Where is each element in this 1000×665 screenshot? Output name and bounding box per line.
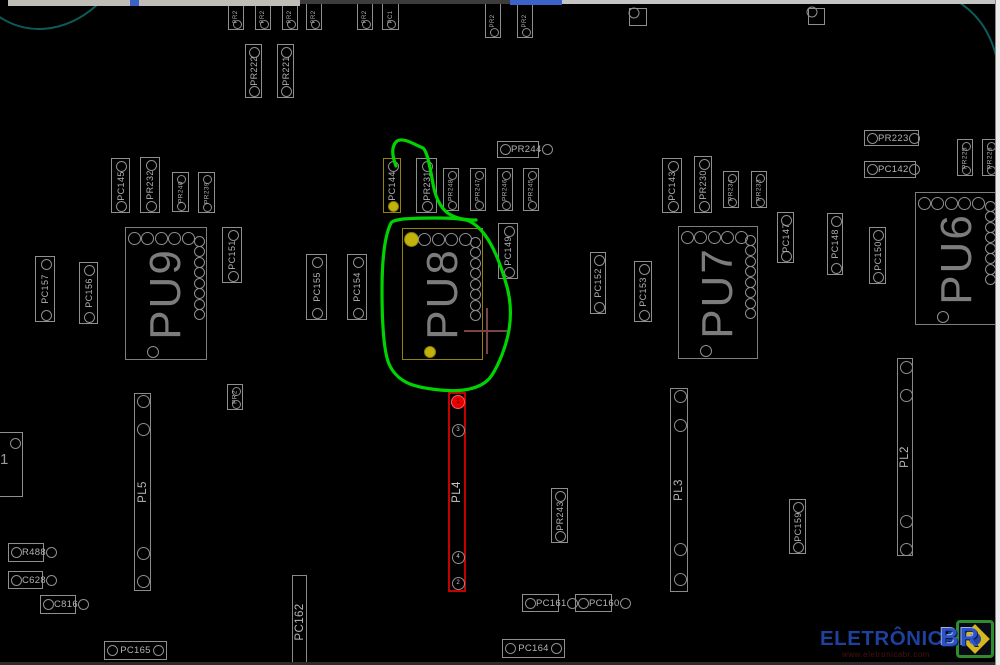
- chip-pad-icon: [745, 298, 756, 309]
- pin-number: 4: [456, 554, 459, 560]
- component-label: PC152: [593, 268, 603, 298]
- component-label: PR245: [528, 179, 535, 201]
- component-label: PL3: [673, 479, 685, 501]
- chip-pad-icon: [681, 231, 694, 244]
- pin1-marker: [388, 201, 399, 212]
- component-label: PC142: [878, 164, 909, 175]
- component-PR246[interactable]: PR246: [497, 168, 513, 211]
- component-pad-icon: [909, 164, 920, 175]
- connector-pad-icon: 2: [452, 577, 465, 590]
- chip-pad-icon: [745, 287, 756, 298]
- chip-pad-icon: [985, 243, 996, 254]
- component-pad-icon: [551, 643, 562, 654]
- component-PC151[interactable]: PC151: [222, 227, 242, 283]
- component-PR245[interactable]: PR245: [523, 168, 539, 211]
- component-pad-icon: [177, 202, 186, 211]
- component-label: PC1: [388, 10, 394, 23]
- component-pad-icon: [528, 201, 537, 210]
- chip-PU9[interactable]: PU9: [125, 227, 207, 360]
- component-PR2[interactable]: PR2: [227, 384, 243, 410]
- component-pad-icon: [46, 547, 57, 558]
- chip-pad-icon: [141, 232, 154, 245]
- connector-pad-icon: [137, 547, 150, 560]
- component-label: PR222: [249, 56, 259, 86]
- component-pad-icon: [873, 272, 884, 283]
- chip-PU7[interactable]: PU7: [678, 226, 758, 359]
- connector-pad-icon: [137, 423, 150, 436]
- chip-pad-icon: [194, 278, 205, 289]
- component-PC144[interactable]: PC144: [383, 158, 401, 213]
- component-pad-icon: [448, 201, 457, 210]
- component-PR239[interactable]: PR239: [198, 172, 215, 213]
- component-pad-icon: [41, 259, 52, 270]
- component-pad-icon: [153, 645, 164, 656]
- component-pad-icon: [10, 438, 21, 449]
- component-PR221[interactable]: PR221: [277, 44, 294, 98]
- component-pad-icon: [500, 144, 511, 155]
- component-label: PR2: [522, 14, 528, 27]
- chip-pad-icon: [918, 197, 931, 210]
- component-PC147[interactable]: PC147: [777, 212, 794, 263]
- component-PC142[interactable]: PC142: [864, 161, 916, 178]
- chip-pad-icon: [445, 233, 458, 246]
- component-label: PR234: [728, 179, 735, 201]
- component-label: PC148: [830, 229, 840, 259]
- component-PR2[interactable]: PR2: [255, 3, 271, 30]
- component-PR240[interactable]: PR240: [172, 172, 189, 212]
- component-label: PR247: [475, 179, 482, 201]
- component-label: PL5: [137, 481, 149, 503]
- chip-pad-icon: [985, 232, 996, 243]
- connector-PC162[interactable]: PC162: [292, 575, 307, 665]
- chip-pad-icon: [194, 257, 205, 268]
- component-label: PC164: [518, 643, 549, 654]
- chip-pad-icon: [194, 288, 205, 299]
- component-label: PL4: [451, 481, 463, 503]
- connector-pad-icon: [674, 390, 687, 403]
- chip-label: PU9: [141, 248, 191, 340]
- chip-pad-icon: [694, 231, 707, 244]
- connector-pad-icon: [137, 575, 150, 588]
- component-pad-icon: [312, 308, 323, 319]
- component-pad-icon: [11, 575, 22, 586]
- chip-pad-icon: [194, 309, 205, 320]
- connector-PL4[interactable]: PL41342: [448, 392, 466, 592]
- component-layer: PU9PU8PU7PU6PL5PL41342PL3PL2PC162PR2PR2P…: [0, 0, 1000, 665]
- component-label: PR2: [232, 390, 239, 404]
- component-pad-icon: [578, 598, 589, 609]
- component-pad-icon: [490, 28, 499, 37]
- component-pad-icon: [353, 308, 364, 319]
- component-label: PC165: [120, 645, 151, 656]
- component-label: PR2: [260, 10, 266, 23]
- component-label: 1: [0, 451, 8, 468]
- chip-pad-icon: [128, 232, 141, 245]
- component-pad-icon: [525, 598, 536, 609]
- connector-pad-icon: [900, 389, 913, 402]
- chip-pad-icon: [194, 267, 205, 278]
- component-PC150[interactable]: PC150: [869, 227, 886, 284]
- chip-pad-icon: [931, 197, 944, 210]
- component-PC153[interactable]: PC153: [634, 261, 652, 322]
- component-square[interactable]: [808, 8, 825, 25]
- chip-label: PU6: [932, 213, 982, 305]
- chip-pad-icon: [985, 253, 996, 264]
- chip-pad-icon: [470, 237, 481, 248]
- window-top-strip-dark: [300, 0, 510, 4]
- component-label: C816: [54, 599, 78, 610]
- connector-pad-icon: [674, 573, 687, 586]
- component-label: PC156: [84, 278, 94, 308]
- connector-pad-icon: 4: [452, 551, 465, 564]
- component-pad-icon: [555, 531, 566, 542]
- component-pad-icon: [84, 265, 95, 276]
- component-pad-icon: [542, 144, 553, 155]
- component-label: PC162: [294, 603, 306, 640]
- component-label: PR226: [987, 147, 994, 169]
- connector-pad-icon: 3: [452, 424, 465, 437]
- component-label: PC145: [116, 171, 126, 201]
- pin-number: 1: [456, 399, 459, 405]
- component-PR247[interactable]: PR247: [470, 168, 486, 211]
- component-pad-icon: [594, 255, 605, 266]
- connector-pad-icon: [900, 543, 913, 556]
- chip-bottom-pad-icon: [424, 346, 436, 358]
- component-PC161[interactable]: PC161: [522, 594, 559, 612]
- component-PC154[interactable]: PC154: [347, 254, 367, 320]
- connector-pad-icon: [674, 419, 687, 432]
- component-label: PC154: [352, 272, 362, 302]
- chip-pad-icon: [745, 256, 756, 267]
- component-pad-icon: [107, 645, 118, 656]
- component-C628[interactable]: C628: [8, 571, 43, 589]
- component-pad-icon: [11, 547, 22, 558]
- chip-pad-icon: [194, 299, 205, 310]
- chip-pad-icon: [745, 235, 756, 246]
- pin1-marker: [404, 232, 419, 247]
- component-PC145[interactable]: PC145: [111, 158, 130, 213]
- component-PC143[interactable]: PC143: [662, 158, 682, 213]
- chip-pad-icon: [985, 201, 996, 212]
- chip-pad-icon: [470, 300, 481, 311]
- pin-number: 3: [456, 427, 459, 433]
- component-pad-icon: [422, 201, 433, 212]
- component-PR244[interactable]: PR244: [497, 141, 539, 158]
- component-pad-icon: [116, 201, 127, 212]
- window-top-strip-blue: [510, 0, 562, 5]
- component-PR2[interactable]: PR2: [282, 3, 298, 30]
- component-PR234[interactable]: PR234: [723, 171, 739, 208]
- component-PR2[interactable]: PR2: [485, 3, 501, 38]
- component-label: PC151: [227, 240, 237, 270]
- component-PR2[interactable]: PR2: [228, 3, 244, 30]
- component-PC160[interactable]: PC160: [575, 594, 612, 612]
- chip-pad-icon: [958, 197, 971, 210]
- chip-pad-icon: [985, 222, 996, 233]
- chip-pad-icon: [470, 279, 481, 290]
- component-pad-icon: [793, 542, 804, 553]
- component-pad-icon: [639, 310, 650, 321]
- component-C816[interactable]: C816: [40, 595, 76, 614]
- watermark-url-text: www.eletronicabr.com: [842, 650, 930, 659]
- component-label: PC157: [40, 274, 50, 304]
- connector-pad-icon: [900, 361, 913, 374]
- component-PR225[interactable]: PR225: [957, 139, 973, 176]
- chip-bottom-pad-icon: [937, 311, 949, 323]
- chip-pad-icon: [168, 232, 181, 245]
- component-label: PR233: [756, 179, 763, 201]
- component-label: PR230: [698, 170, 708, 200]
- component-pad-icon: [639, 264, 650, 275]
- component-label: PC155: [312, 272, 322, 302]
- component-pad-icon: [831, 216, 842, 227]
- component-pad-icon: [867, 164, 878, 175]
- chip-pad-icon: [470, 268, 481, 279]
- component-PC152[interactable]: PC152: [590, 252, 606, 314]
- component-pad-icon: [594, 302, 605, 313]
- component-pad-icon: [522, 28, 531, 37]
- component-label: PC147: [781, 223, 791, 253]
- component-pad-icon: [203, 203, 212, 212]
- component-pad-icon: [699, 159, 710, 170]
- chip-pad-icon: [985, 274, 996, 285]
- component-label: PR2: [233, 10, 239, 23]
- window-top-strip: [8, 0, 300, 6]
- component-PR2[interactable]: PR2: [306, 3, 322, 30]
- connector-pad-icon: [674, 543, 687, 556]
- component-PC157[interactable]: PC157: [35, 256, 55, 322]
- component-pad-icon: [249, 86, 260, 97]
- component-label: PR248: [448, 179, 455, 201]
- component-label: PR225: [962, 147, 969, 169]
- component-PR2[interactable]: PR2: [357, 3, 373, 30]
- component-pad-icon: [831, 263, 842, 274]
- chip-PU6[interactable]: PU6: [915, 192, 998, 325]
- component-partial-left[interactable]: 1: [0, 432, 23, 497]
- component-PR248[interactable]: PR248: [443, 168, 459, 211]
- connector-pad-icon: [137, 395, 150, 408]
- component-label: PR246: [502, 179, 509, 201]
- component-label: R488: [22, 547, 46, 558]
- component-pad-icon: [504, 267, 515, 278]
- connector-PL5[interactable]: PL5: [134, 393, 151, 591]
- component-label: PR2: [287, 10, 293, 23]
- component-label: PC150: [873, 241, 883, 271]
- component-pad-icon: [909, 133, 920, 144]
- chip-pad-icon: [432, 233, 445, 246]
- window-right-border: [995, 0, 1000, 665]
- component-PC156[interactable]: PC156: [79, 262, 98, 324]
- component-pad-icon: [353, 257, 364, 268]
- component-square[interactable]: [629, 8, 647, 26]
- component-pad-icon: [502, 201, 511, 210]
- chip-pad-icon: [745, 277, 756, 288]
- component-label: PR223: [878, 133, 909, 144]
- component-label: PC159: [793, 512, 803, 542]
- component-PR231[interactable]: PR231: [416, 158, 437, 213]
- component-PC149[interactable]: PC149: [498, 223, 518, 279]
- connector-PL3[interactable]: PL3: [670, 388, 688, 592]
- chip-pad-icon: [985, 264, 996, 275]
- component-pad-icon: [43, 599, 54, 610]
- component-label: PR221: [281, 56, 291, 86]
- component-pad-icon: [41, 310, 52, 321]
- chip-pad-icon: [470, 289, 481, 300]
- chip-bottom-pad-icon: [147, 346, 159, 358]
- chip-label: PU8: [418, 248, 468, 340]
- chip-pad-icon: [985, 211, 996, 222]
- component-label: PC143: [667, 171, 677, 201]
- component-PR243[interactable]: PR243: [551, 488, 568, 543]
- component-pad-icon: [668, 201, 679, 212]
- component-PR232[interactable]: PR232: [140, 157, 160, 213]
- connector-PL2[interactable]: PL2: [897, 358, 913, 556]
- component-label: PC153: [638, 277, 648, 307]
- component-PR222[interactable]: PR222: [245, 44, 262, 98]
- chip-pad-icon: [721, 231, 734, 244]
- chip-pad-icon: [972, 197, 985, 210]
- chip-pad-icon: [745, 245, 756, 256]
- watermark-brand-text: ELETRÔNICA: [820, 627, 958, 651]
- component-label: PR2: [311, 10, 317, 23]
- component-pad-icon: [628, 7, 639, 18]
- pin1-marker: 1: [451, 395, 465, 409]
- component-pad-icon: [228, 271, 239, 282]
- chip-pad-icon: [745, 266, 756, 277]
- component-PC155[interactable]: PC155: [306, 254, 327, 320]
- component-pad-icon: [84, 312, 95, 323]
- component-PR230[interactable]: PR230: [694, 156, 712, 213]
- component-label: PR239: [203, 182, 210, 204]
- component-PC1[interactable]: PC1: [382, 3, 399, 30]
- component-PC159[interactable]: PC159: [789, 499, 806, 554]
- chip-label: PU7: [693, 247, 743, 339]
- chip-pad-icon: [945, 197, 958, 210]
- component-pad-icon: [475, 201, 484, 210]
- component-pad-icon: [281, 86, 292, 97]
- chip-pad-icon: [182, 232, 195, 245]
- chip-pad-icon: [194, 246, 205, 257]
- component-label: PC149: [503, 236, 513, 266]
- component-label: PC160: [589, 598, 620, 609]
- component-pad-icon: [867, 133, 878, 144]
- watermark-suffix-text: BR: [940, 622, 980, 653]
- component-pad-icon: [78, 599, 89, 610]
- component-label: PC161: [536, 598, 567, 609]
- chip-PU8[interactable]: PU8: [402, 228, 483, 360]
- component-pad-icon: [312, 257, 323, 268]
- component-label: PR231: [422, 171, 432, 201]
- component-label: PC144: [387, 171, 397, 201]
- component-R488[interactable]: R488: [8, 543, 44, 562]
- chip-pad-icon: [745, 308, 756, 319]
- component-PR2[interactable]: PR2: [517, 3, 533, 38]
- component-pad-icon: [505, 643, 516, 654]
- component-label: PR243: [555, 501, 565, 531]
- component-PC164[interactable]: PC164: [502, 639, 565, 658]
- component-label: PR2: [362, 10, 368, 23]
- chip-pad-icon: [470, 247, 481, 258]
- component-label: PR244: [511, 144, 542, 155]
- chip-pad-icon: [418, 233, 431, 246]
- component-PR233[interactable]: PR233: [751, 171, 767, 208]
- component-label: PR2: [490, 14, 496, 27]
- component-pad-icon: [46, 575, 57, 586]
- chip-pad-icon: [708, 231, 721, 244]
- pin-number: 2: [456, 580, 459, 586]
- component-label: PR232: [145, 170, 155, 200]
- connector-pad-icon: [900, 515, 913, 528]
- component-pad-icon: [620, 598, 631, 609]
- component-label: C628: [22, 575, 46, 586]
- component-PR223[interactable]: PR223: [864, 130, 919, 146]
- chip-pad-icon: [194, 236, 205, 247]
- component-PC165[interactable]: PC165: [104, 641, 167, 660]
- component-label: PR240: [177, 181, 184, 203]
- chip-bottom-pad-icon: [700, 345, 712, 357]
- component-pad-icon: [146, 201, 157, 212]
- component-pad-icon: [873, 230, 884, 241]
- component-label: PL2: [899, 446, 911, 468]
- watermark: ELETRÔNICA BR www.eletronicabr.com: [820, 618, 998, 664]
- chip-pad-icon: [470, 310, 481, 321]
- chip-pad-icon: [470, 258, 481, 269]
- component-PC148[interactable]: PC148: [827, 213, 843, 275]
- chip-pad-icon: [155, 232, 168, 245]
- window-top-strip-blue-tick: [130, 0, 139, 6]
- component-pad-icon: [807, 7, 818, 18]
- component-pad-icon: [699, 201, 710, 212]
- boardview-canvas[interactable]: PU9PU8PU7PU6PL5PL41342PL3PL2PC162PR2PR2P…: [0, 0, 1000, 665]
- window-top-strip-right: [562, 0, 995, 4]
